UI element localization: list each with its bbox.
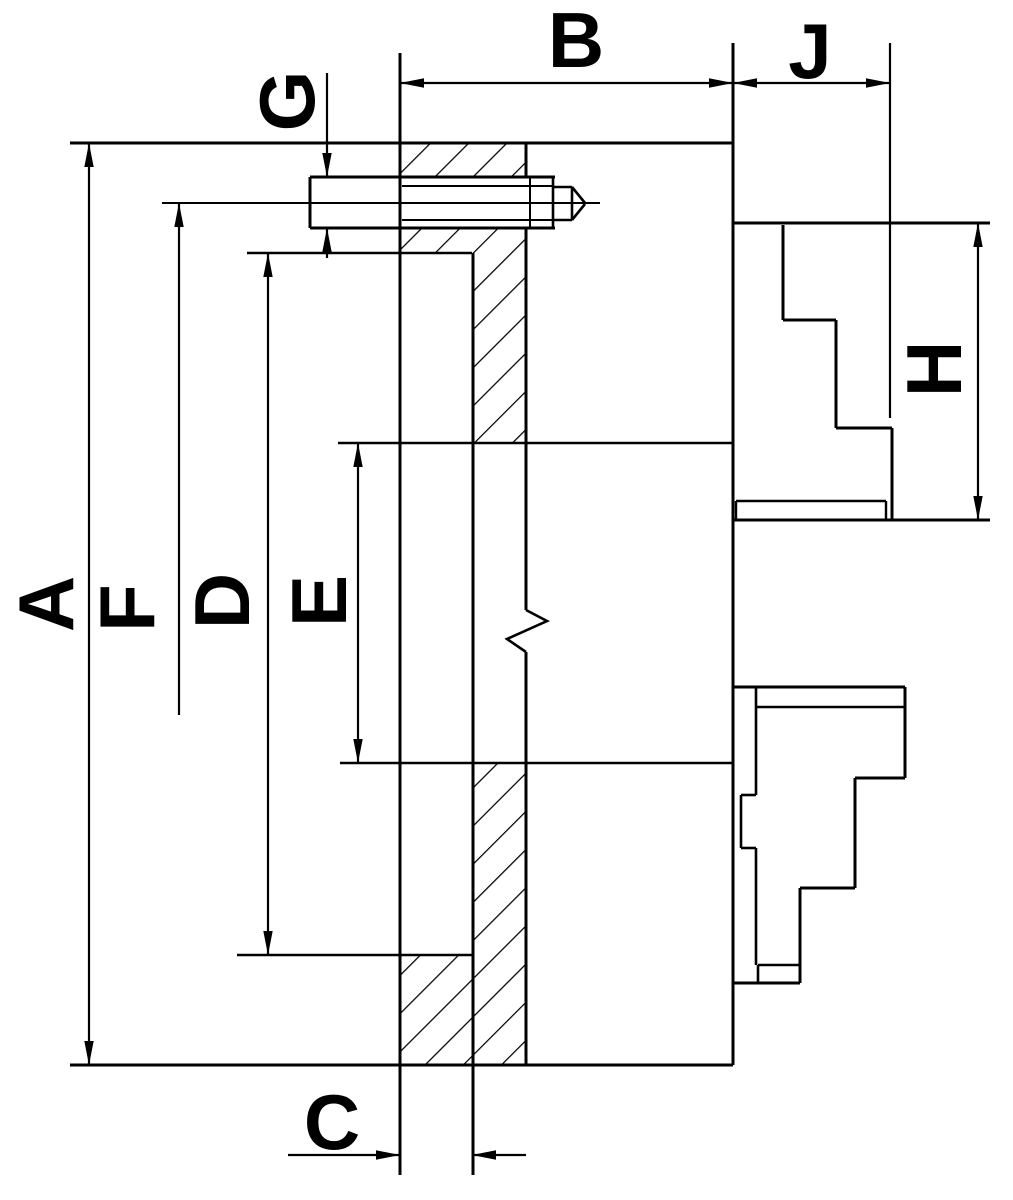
dim-label-F: F <box>83 584 171 632</box>
dim-label-D: D <box>178 573 266 629</box>
hatch-region <box>400 954 473 1065</box>
dim-label-H: H <box>890 341 978 397</box>
dim-label-J: J <box>788 7 831 95</box>
hatch-region <box>400 228 525 253</box>
hatch-region <box>472 253 525 443</box>
dim-label-A: A <box>2 576 90 632</box>
hatch-region <box>473 763 526 1065</box>
technical-drawing-page: AFDEGHBJC <box>0 0 1013 1200</box>
dim-label-C: C <box>304 1078 360 1166</box>
hatch-region <box>400 143 525 177</box>
dim-label-E: E <box>275 575 363 627</box>
chuck-cross-section-drawing: AFDEGHBJC <box>0 0 1013 1200</box>
dim-label-G: G <box>243 71 331 132</box>
dim-label-B: B <box>548 0 604 84</box>
